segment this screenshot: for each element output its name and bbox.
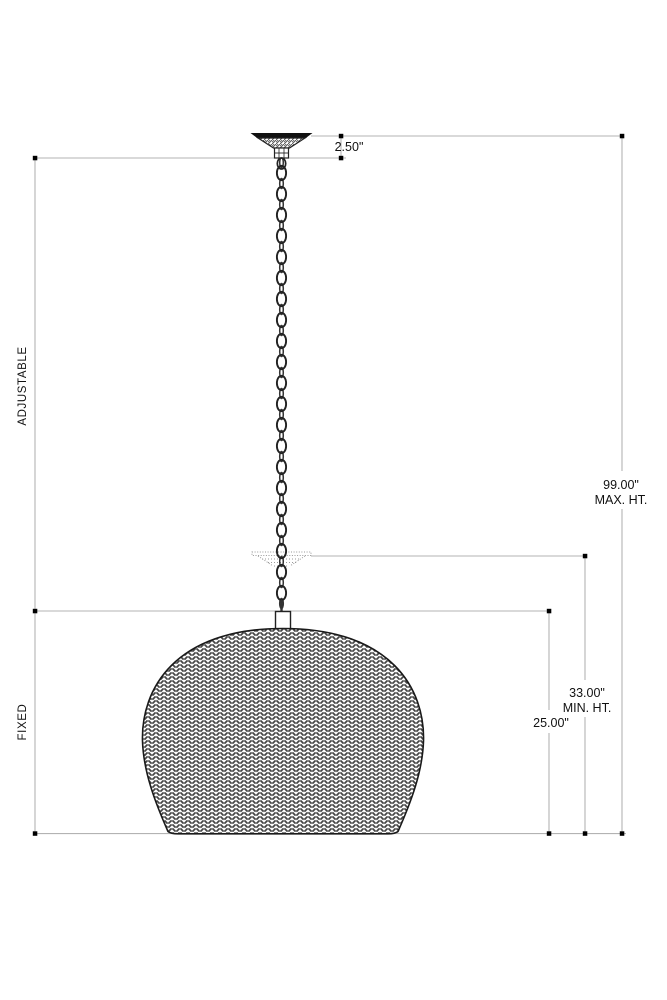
canopy-height-dim: 2.50" — [335, 140, 364, 154]
fixed-label: FIXED — [17, 704, 29, 741]
pendant-drawing: 2.50" 99.00" MAX. HT. 33.00" MIN. HT. 25… — [0, 0, 667, 1000]
max-height-value: 99.00" — [603, 478, 639, 492]
canopy — [252, 134, 311, 170]
dot-left-top — [33, 156, 38, 161]
dot-33-top — [583, 554, 588, 559]
pendant-drawing-canvas: 2.50" 99.00" MAX. HT. 33.00" MIN. HT. 25… — [0, 0, 667, 1000]
dot-25-top — [547, 609, 552, 614]
min-height-value: 33.00" — [569, 686, 605, 700]
dot-left-mid — [33, 609, 38, 614]
canopy-cone — [258, 138, 305, 148]
dot-99-bottom — [620, 831, 625, 836]
ghost-canopy-disc — [252, 552, 311, 556]
adjustable-label: ADJUSTABLE — [17, 346, 29, 425]
dot-25-bottom — [547, 831, 552, 836]
dot-99-top — [620, 134, 625, 139]
canopy-disc — [252, 134, 311, 139]
max-height-label: MAX. HT. — [595, 493, 648, 507]
dot-33-bottom — [583, 831, 588, 836]
chain — [277, 158, 286, 613]
dot-left-bottom — [33, 831, 38, 836]
woven-dome-shade — [142, 629, 423, 834]
ghost-canopy-cone-left — [258, 556, 273, 566]
dot-tick-bottom — [339, 156, 344, 161]
shade-height-dim: 25.00" — [533, 716, 569, 730]
dot-tick-top — [339, 134, 344, 139]
ghost-canopy-cone-right — [290, 556, 305, 566]
min-height-label: MIN. HT. — [563, 701, 612, 715]
